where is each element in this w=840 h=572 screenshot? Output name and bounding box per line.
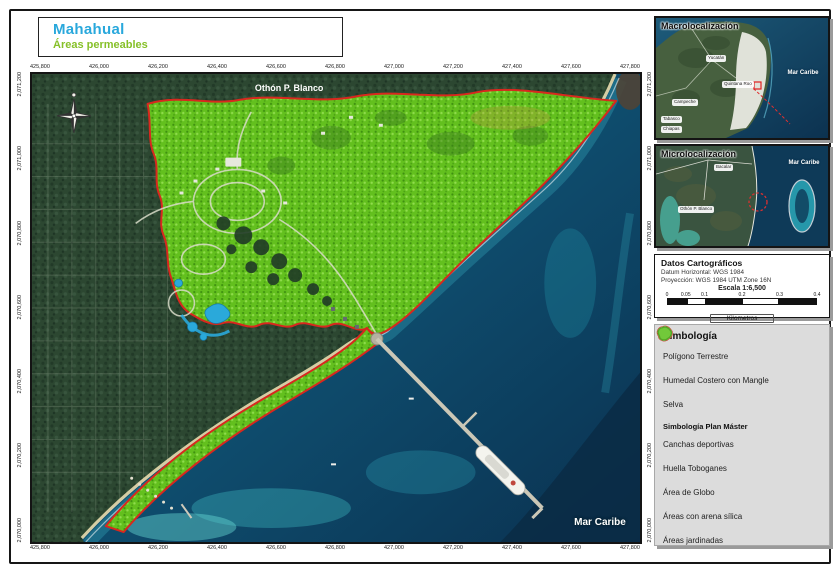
legend-item-label: Humedal Costero con Mangle (663, 376, 769, 385)
coord-label: 426,400 (207, 545, 227, 551)
micro-label-othon: Othón P. Blanco (678, 206, 714, 213)
coord-label: 2,070,600 (647, 295, 653, 319)
cartographic-data-panel: Datos Cartográficos Datum Horizontal: WG… (654, 254, 830, 318)
macro-label-chiapas: Chiapas (661, 126, 682, 133)
coord-label: 426,800 (325, 64, 345, 70)
shallow-patch (127, 513, 237, 541)
coord-label: 426,800 (325, 545, 345, 551)
coord-label: 427,000 (384, 545, 404, 551)
coord-label: 2,071,200 (17, 72, 23, 96)
map-layout-page: Mahahual Áreas permeables 425,800426,000… (0, 0, 840, 572)
legend-item: Selva (663, 392, 821, 416)
coord-label: 2,071,200 (647, 72, 653, 96)
coord-label: 2,070,000 (17, 518, 23, 542)
scale-ticks: 00.050.10.20.30.4 (667, 292, 817, 298)
map-subtitle: Áreas permeables (53, 39, 342, 51)
coord-label: 0.1 (701, 292, 708, 298)
coord-label: 2,070,200 (17, 443, 23, 467)
coord-label: 2,070,600 (17, 295, 23, 319)
coord-label: 2,070,200 (647, 443, 653, 467)
legend-item: Polígono Terrestre (663, 344, 821, 368)
legend-item: Áreas jardinadas (663, 528, 821, 552)
coord-label: 0.3 (776, 292, 783, 298)
legend-title: Simbología (663, 331, 821, 342)
coord-label: 426,600 (266, 64, 286, 70)
legend-item: Áreas con arena sílica (663, 504, 821, 528)
y-coordinates-right: 2,071,2002,071,0002,070,8002,070,6002,07… (642, 72, 658, 542)
coord-label: 427,200 (443, 64, 463, 70)
legend-item: Huella Toboganes (663, 456, 821, 480)
map-title-box: Mahahual Áreas permeables (38, 17, 343, 57)
legend-item-label: Polígono Terrestre (663, 352, 728, 361)
coord-label: 0 (666, 292, 669, 298)
coord-label: 0.2 (739, 292, 746, 298)
shallow-patch (544, 228, 596, 338)
map-title: Mahahual (53, 21, 342, 38)
coord-label: 2,071,000 (17, 146, 23, 170)
legend-item-label: Áreas con arena sílica (663, 512, 742, 521)
coord-label: 427,800 (620, 545, 640, 551)
micro-title: Microlocalización (661, 149, 736, 159)
coord-label: 425,800 (30, 545, 50, 551)
coord-label: 427,000 (384, 64, 404, 70)
coord-label: 426,000 (89, 64, 109, 70)
macro-map-canvas (656, 18, 828, 138)
coord-label: 0.4 (814, 292, 821, 298)
main-map: Othón P. Blanco Mar Caribe (30, 72, 642, 544)
y-coordinates-left: 2,071,2002,071,0002,070,8002,070,6002,07… (12, 72, 28, 542)
datos-title: Datos Cartográficos (661, 258, 823, 268)
x-coordinates-bottom: 425,800426,000426,200426,400426,600426,8… (30, 545, 640, 555)
macro-label-campeche: Campeche (672, 99, 698, 106)
coord-label: 426,000 (89, 545, 109, 551)
inset-microlocalizacion: Microlocalización Bacalar Othón P. Blanc… (654, 144, 830, 248)
coord-label: 2,070,800 (17, 221, 23, 245)
legend-master-title: Simbología Plan Máster (663, 422, 821, 431)
coord-label: 2,070,400 (17, 369, 23, 393)
coord-label: 0.05 (681, 292, 691, 298)
boat (409, 398, 414, 400)
dry-patch (471, 106, 551, 130)
macro-label-tabasco: Tabasco (661, 116, 682, 123)
scale-units-box: Kilometros (661, 307, 823, 325)
municipality-label: Othón P. Blanco (255, 83, 324, 93)
sea-label: Mar Caribe (574, 517, 626, 529)
legend-item: Área de Globo (663, 480, 821, 504)
legend-item-label: Área de Globo (663, 488, 715, 497)
coord-label: 427,600 (561, 64, 581, 70)
coord-label: 427,800 (620, 64, 640, 70)
shallow-patch (366, 450, 476, 494)
inset-macrolocalizacion: Macrolocalización Yucatán Quintana Roo C… (654, 16, 830, 140)
coord-label: 427,400 (502, 64, 522, 70)
legend-item-label: Selva (663, 400, 683, 409)
coord-label: 426,200 (148, 64, 168, 70)
legend-item-label: Huella Toboganes (663, 464, 727, 473)
datum-line: Datum Horizontal: WGS 1984 (661, 269, 823, 276)
micro-label-bacalar: Bacalar (714, 164, 733, 171)
chinchorro-bank (789, 180, 815, 232)
coord-label: 427,200 (443, 545, 463, 551)
micro-sea-label: Mar Caribe (786, 160, 822, 167)
scale-text: Escala 1:6,500 (661, 285, 823, 292)
scale-bar (667, 298, 817, 305)
legend-panel: Simbología Polígono Terrestre Humedal Co… (654, 324, 830, 546)
coord-label: 427,400 (502, 545, 522, 551)
coord-label: 2,070,800 (647, 221, 653, 245)
coord-label: 425,800 (30, 64, 50, 70)
boat (331, 463, 336, 465)
coord-label: 426,600 (266, 545, 286, 551)
macro-label-yucatan: Yucatán (706, 55, 726, 62)
coord-label: 2,070,000 (647, 518, 653, 542)
scale-units: Kilometros (710, 314, 775, 323)
projection-line: Proyección: WGS 1984 UTM Zone 16N (661, 277, 823, 284)
x-coordinates-top: 425,800426,000426,200426,400426,600426,8… (30, 60, 640, 70)
legend-item: Canchas deportivas (663, 432, 821, 456)
coord-label: 427,600 (561, 545, 581, 551)
coord-label: 426,200 (148, 545, 168, 551)
scale-bar-block: 00.050.10.20.30.4 (667, 292, 817, 305)
legend-item-label: Canchas deportivas (663, 440, 734, 449)
map-canvas: Othón P. Blanco (32, 74, 640, 542)
macro-label-quintana-roo: Quintana Roo (722, 81, 754, 88)
coord-label: 426,400 (207, 64, 227, 70)
legend-item: Humedal Costero con Mangle (663, 368, 821, 392)
coord-label: 2,071,000 (647, 146, 653, 170)
legend-item-label: Áreas jardinadas (663, 536, 723, 545)
macro-title: Macrolocalización (661, 21, 739, 31)
macro-sea-label: Mar Caribe (784, 70, 822, 77)
coord-label: 2,070,400 (647, 369, 653, 393)
